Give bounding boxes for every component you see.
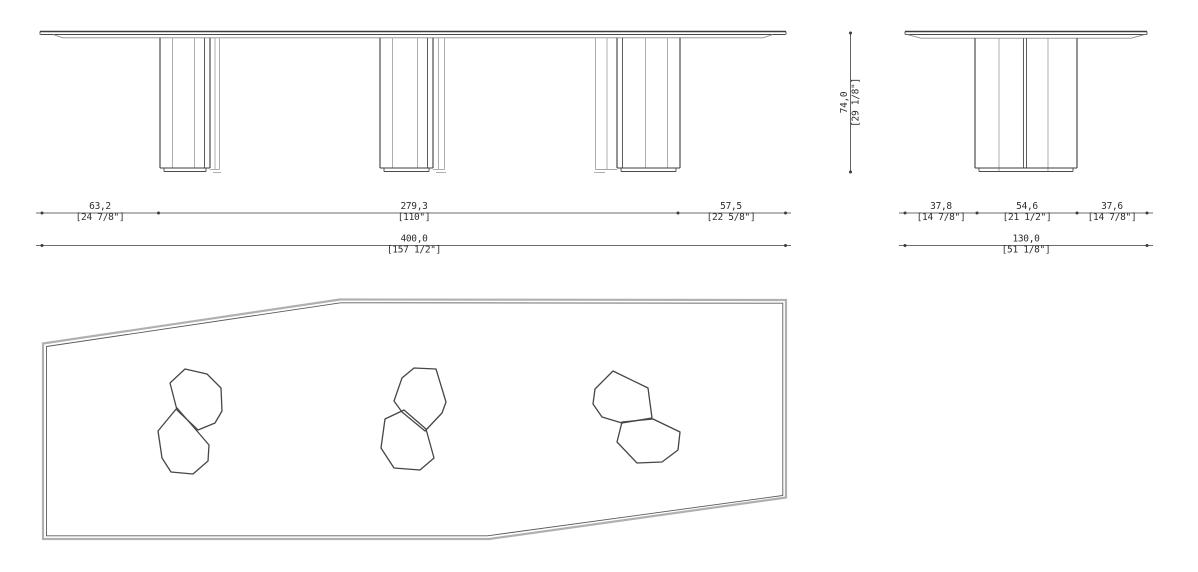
dimension-value-inches: [157 1/2"] bbox=[387, 245, 441, 256]
side-dimensions-row-2: 130,0 [51 1/8"] bbox=[899, 234, 1153, 256]
side-tabletop bbox=[905, 32, 1147, 39]
dimension-value-mm: 130,0 bbox=[1012, 234, 1040, 245]
dimension-value-mm: 63,2 bbox=[89, 201, 111, 212]
front-leg-2 bbox=[380, 38, 446, 173]
technical-drawing-canvas: 63,2 [24 7/8"] 279,3 [110"] 57,5 [22 5/8… bbox=[0, 0, 1198, 572]
dimension-value-mm: 400,0 bbox=[400, 234, 428, 245]
dimension-tick bbox=[784, 212, 787, 215]
dimension-label-front-seg3: 57,5 [22 5/8"] bbox=[707, 201, 756, 223]
plan-view bbox=[43, 300, 786, 540]
plan-leg-3 bbox=[593, 371, 680, 463]
dimension-tick bbox=[41, 212, 44, 215]
dimension-tick bbox=[41, 244, 44, 247]
leg-plan-facet-upper bbox=[394, 368, 446, 431]
dimension-value-inches: [51 1/8"] bbox=[1002, 245, 1051, 256]
dimension-label-front-seg1: 63,2 [24 7/8"] bbox=[76, 201, 125, 223]
tabletop-right-chamfer bbox=[763, 35, 773, 38]
height-dimension: 74,0 [29 1/8"] bbox=[839, 32, 862, 174]
dimension-value-inches: [14 7/8"] bbox=[1088, 212, 1137, 223]
leg-plan-facet-upper bbox=[170, 369, 222, 430]
dimension-tick bbox=[1146, 244, 1149, 247]
plan-leg-2 bbox=[381, 368, 446, 470]
dimension-label-front-overall: 400,0 [157 1/2"] bbox=[387, 234, 441, 256]
dimension-value-mm: 37,6 bbox=[1101, 201, 1123, 212]
dimension-tick bbox=[849, 171, 852, 174]
dimension-tick bbox=[904, 212, 907, 215]
dimension-value-mm: 54,6 bbox=[1016, 201, 1038, 212]
dimension-value-mm: 74,0 bbox=[839, 91, 850, 113]
dimension-tick bbox=[677, 212, 680, 215]
table-technical-drawing: 63,2 [24 7/8"] 279,3 [110"] 57,5 [22 5/8… bbox=[0, 0, 1198, 572]
front-dimensions-row-2: 400,0 [157 1/2"] bbox=[36, 234, 791, 256]
dimension-tick bbox=[904, 244, 907, 247]
front-elevation-view: 63,2 [24 7/8"] 279,3 [110"] 57,5 [22 5/8… bbox=[36, 32, 791, 256]
front-tabletop bbox=[40, 32, 786, 38]
front-dimensions-row-1: 63,2 [24 7/8"] 279,3 [110"] 57,5 [22 5/8… bbox=[36, 201, 791, 223]
tabletop-right-chamfer bbox=[1131, 35, 1145, 39]
dimension-label-side-seg3: 37,6 [14 7/8"] bbox=[1088, 201, 1137, 223]
front-leg-3 bbox=[594, 38, 680, 173]
dimension-tick bbox=[157, 212, 160, 215]
dimension-tick bbox=[784, 244, 787, 247]
leg-plan-facet-lower bbox=[617, 419, 680, 463]
dimension-value-inches: [21 1/2"] bbox=[1003, 212, 1052, 223]
dimension-value-mm: 57,5 bbox=[720, 201, 742, 212]
front-leg-1 bbox=[160, 38, 221, 173]
tabletop-left-chamfer bbox=[53, 35, 63, 38]
dimension-value-inches: [22 5/8"] bbox=[707, 212, 756, 223]
dimension-label-front-seg2: 279,3 [110"] bbox=[398, 201, 431, 223]
dimension-tick bbox=[1076, 212, 1079, 215]
dimension-value-mm: 279,3 bbox=[400, 201, 427, 212]
dimension-tick bbox=[1146, 212, 1149, 215]
dimension-tick bbox=[976, 212, 979, 215]
side-dimensions-row-1: 37,8 [14 7/8"] 54,6 [21 1/2"] 37,6 [14 7… bbox=[899, 201, 1153, 223]
side-elevation-view: 37,8 [14 7/8"] 54,6 [21 1/2"] 37,6 [14 7… bbox=[899, 32, 1153, 256]
dimension-tick bbox=[849, 32, 852, 35]
dimension-value-inches: [14 7/8"] bbox=[917, 212, 966, 223]
dimension-label-side-seg1: 37,8 [14 7/8"] bbox=[917, 201, 966, 223]
dimension-label-side-overall: 130,0 [51 1/8"] bbox=[1002, 234, 1051, 256]
tabletop-left-chamfer bbox=[907, 35, 921, 39]
dimension-label-side-seg2: 54,6 [21 1/2"] bbox=[1003, 201, 1052, 223]
dimension-value-mm: 37,8 bbox=[930, 201, 952, 212]
dimension-value-inches: [24 7/8"] bbox=[76, 212, 125, 223]
leg-plan-facet-lower bbox=[381, 410, 434, 470]
dimension-label-height: 74,0 [29 1/8"] bbox=[839, 78, 862, 127]
leg-plan-facet-upper bbox=[593, 371, 652, 423]
dimension-value-inches: [110"] bbox=[398, 212, 431, 223]
leg-plan-facet-lower bbox=[158, 408, 209, 474]
plan-leg-1 bbox=[158, 369, 222, 474]
dimension-value-inches: [29 1/8"] bbox=[851, 78, 862, 127]
side-pedestal bbox=[975, 38, 1077, 171]
